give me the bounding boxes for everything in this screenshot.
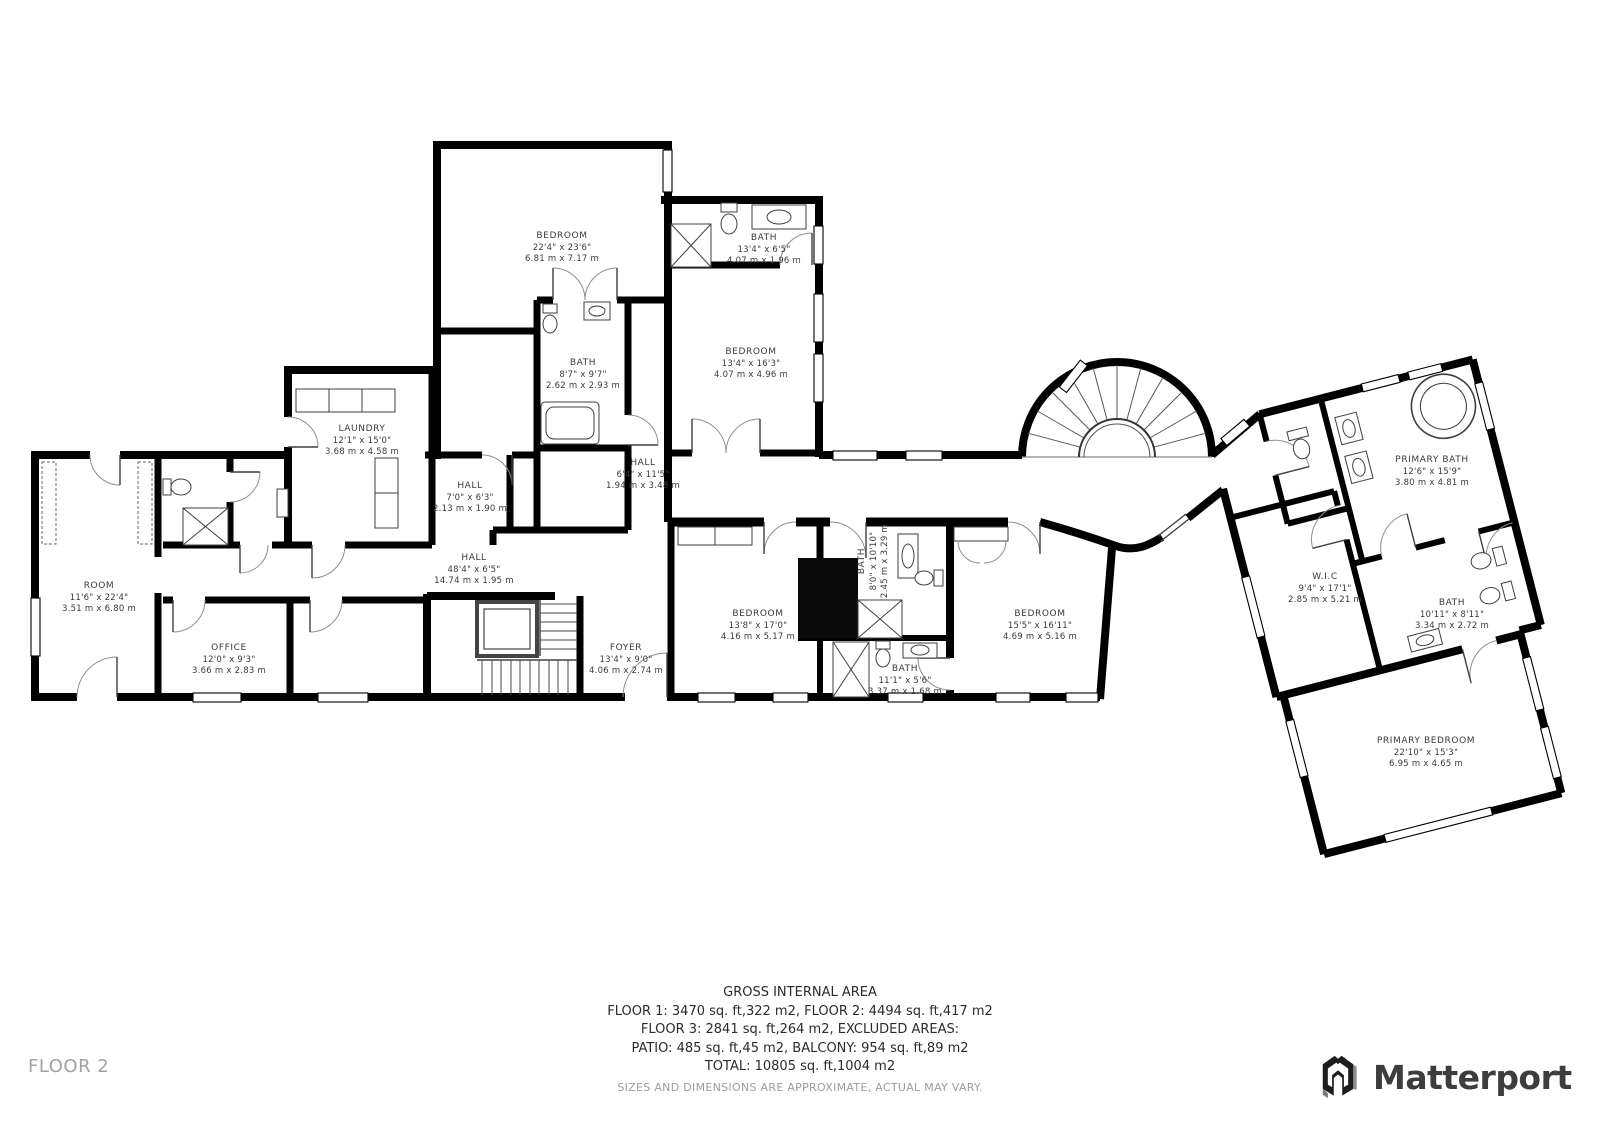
- room-label-bedroom-east: BEDROOM13'4" x 16'3"4.07 m x 4.96 m: [714, 347, 788, 382]
- room-name: BATH: [727, 233, 801, 245]
- room-label-bath-top: BATH13'4" x 6'5"4.07 m x 1.96 m: [727, 233, 801, 268]
- room-label-bedroom-center: BEDROOM13'8" x 17'0"4.16 m x 5.17 m: [721, 609, 795, 644]
- room-name: BATH: [868, 664, 942, 676]
- room-name: BEDROOM: [714, 347, 788, 359]
- room-name: HALL: [433, 481, 507, 493]
- room-dims-metric: 4.07 m x 4.96 m: [714, 370, 788, 382]
- room-dims-imperial: 13'4" x 16'3": [714, 358, 788, 370]
- room-dims-metric: 1.94 m x 3.48 m: [606, 481, 680, 493]
- shaft: [798, 558, 858, 638]
- room-label-office: OFFICE12'0" x 9'3"3.66 m x 2.83 m: [192, 643, 266, 678]
- room-label-foyer: FOYER13'4" x 9'0"4.06 m x 2.74 m: [589, 643, 663, 678]
- room-dims-metric: 3.34 m x 2.72 m: [1415, 621, 1489, 633]
- room-dims-metric: 3.51 m x 6.80 m: [62, 604, 136, 616]
- room-name: BEDROOM: [525, 231, 599, 243]
- room-name: BEDROOM: [721, 609, 795, 621]
- room-dims-metric: 3.80 m x 4.81 m: [1395, 478, 1469, 490]
- floorplan-page: BEDROOM22'4" x 23'6"6.81 m x 7.17 mBATH1…: [0, 0, 1600, 1131]
- room-dims-imperial: 10'11" x 8'11": [1415, 609, 1489, 621]
- matterport-icon: [1316, 1054, 1360, 1100]
- room-name: LAUNDRY: [325, 424, 399, 436]
- room-dims-metric: 4.69 m x 5.16 m: [1003, 632, 1077, 644]
- room-label-hall-small: HALL7'0" x 6'3"2.13 m x 1.90 m: [433, 481, 507, 516]
- room-dims-metric: 4.07 m x 1.96 m: [727, 256, 801, 268]
- room-label-bath-wing: BATH10'11" x 8'11"3.34 m x 2.72 m: [1415, 598, 1489, 633]
- room-name: BATH: [1415, 598, 1489, 610]
- room-name: FOYER: [589, 643, 663, 655]
- room-dims-imperial: 22'4" x 23'6": [525, 242, 599, 254]
- room-dims-imperial: 9'4" x 17'1": [1288, 583, 1362, 595]
- room-label-room-west: ROOM11'6" x 22'4"3.51 m x 6.80 m: [62, 581, 136, 616]
- room-label-hall-mid: HALL6'4" x 11'5"1.94 m x 3.48 m: [606, 458, 680, 493]
- summary-line-2: FLOOR 3: 2841 sq. ft,264 m2, EXCLUDED AR…: [0, 1021, 1600, 1040]
- room-name: W.I.C: [1288, 572, 1362, 584]
- room-dims-metric: 6.81 m x 7.17 m: [525, 254, 599, 266]
- room-name: BATH: [857, 524, 869, 598]
- room-dims-metric: 4.06 m x 2.74 m: [589, 666, 663, 678]
- room-label-primary-bedroom: PRIMARY BEDROOM22'10" x 15'3"6.95 m x 4.…: [1377, 736, 1475, 771]
- stairwell: [477, 600, 577, 695]
- room-dims-imperial: 48'4" x 6'5": [434, 564, 514, 576]
- room-dims-imperial: 12'6" x 15'9": [1395, 466, 1469, 478]
- room-dims-metric: 2.85 m x 5.21 m: [1288, 595, 1362, 607]
- room-dims-metric: 3.37 m x 1.68 m: [868, 687, 942, 699]
- spiral-staircase: [1022, 365, 1212, 457]
- room-dims-imperial: 13'4" x 6'5": [727, 244, 801, 256]
- room-label-laundry: LAUNDRY12'1" x 15'0"3.68 m x 4.58 m: [325, 424, 399, 459]
- room-name: BATH: [546, 358, 620, 370]
- room-label-bedroom-top: BEDROOM22'4" x 23'6"6.81 m x 7.17 m: [525, 231, 599, 266]
- room-name: HALL: [434, 553, 514, 565]
- room-label-bath-vertical: BATH8'0" x 10'10"2.45 m x 3.29 m: [857, 524, 892, 598]
- room-dims-metric: 4.16 m x 5.17 m: [721, 632, 795, 644]
- room-dims-metric: 6.95 m x 4.65 m: [1377, 759, 1475, 771]
- room-dims-metric: 3.66 m x 2.83 m: [192, 666, 266, 678]
- room-dims-metric: 14.74 m x 1.95 m: [434, 576, 514, 588]
- room-dims-metric: 2.62 m x 2.93 m: [546, 381, 620, 393]
- room-dims-imperial: 15'5" x 16'11": [1003, 620, 1077, 632]
- summary-title: GROSS INTERNAL AREA: [0, 984, 1600, 1003]
- room-name: ROOM: [62, 581, 136, 593]
- room-name: HALL: [606, 458, 680, 470]
- room-dims-imperial: 8'0" x 10'10": [868, 524, 880, 598]
- floor-plan-drawing: [0, 0, 1600, 1131]
- room-label-bath-center: BATH8'7" x 9'7"2.62 m x 2.93 m: [546, 358, 620, 393]
- room-dims-metric: 2.45 m x 3.29 m: [880, 524, 892, 598]
- room-name: PRIMARY BEDROOM: [1377, 736, 1475, 748]
- room-dims-imperial: 7'0" x 6'3": [433, 492, 507, 504]
- room-label-primary-bath: PRIMARY BATH12'6" x 15'9"3.80 m x 4.81 m: [1395, 455, 1469, 490]
- room-name: BEDROOM: [1003, 609, 1077, 621]
- room-label-hall-long: HALL48'4" x 6'5"14.74 m x 1.95 m: [434, 553, 514, 588]
- room-dims-imperial: 12'1" x 15'0": [325, 435, 399, 447]
- primary-suite-wing: [1202, 355, 1587, 861]
- room-dims-imperial: 8'7" x 9'7": [546, 369, 620, 381]
- room-dims-metric: 3.68 m x 4.58 m: [325, 447, 399, 459]
- matterport-wordmark: Matterport: [1373, 1058, 1572, 1097]
- room-dims-metric: 2.13 m x 1.90 m: [433, 504, 507, 516]
- room-label-wic: W.I.C9'4" x 17'1"2.85 m x 5.21 m: [1288, 572, 1362, 607]
- room-name: PRIMARY BATH: [1395, 455, 1469, 467]
- room-dims-imperial: 12'0" x 9'3": [192, 654, 266, 666]
- matterport-logo: Matterport: [1316, 1054, 1572, 1100]
- floor-label: FLOOR 2: [28, 1056, 109, 1077]
- room-dims-imperial: 11'6" x 22'4": [62, 592, 136, 604]
- room-dims-imperial: 13'8" x 17'0": [721, 620, 795, 632]
- room-label-bedroom-east2: BEDROOM15'5" x 16'11"4.69 m x 5.16 m: [1003, 609, 1077, 644]
- room-name: OFFICE: [192, 643, 266, 655]
- room-label-bath-south: BATH11'1" x 5'6"3.37 m x 1.68 m: [868, 664, 942, 699]
- room-dims-imperial: 6'4" x 11'5": [606, 469, 680, 481]
- room-dims-imperial: 11'1" x 5'6": [868, 675, 942, 687]
- room-dims-imperial: 13'4" x 9'0": [589, 654, 663, 666]
- summary-line-1: FLOOR 1: 3470 sq. ft,322 m2, FLOOR 2: 44…: [0, 1003, 1600, 1022]
- room-dims-imperial: 22'10" x 15'3": [1377, 747, 1475, 759]
